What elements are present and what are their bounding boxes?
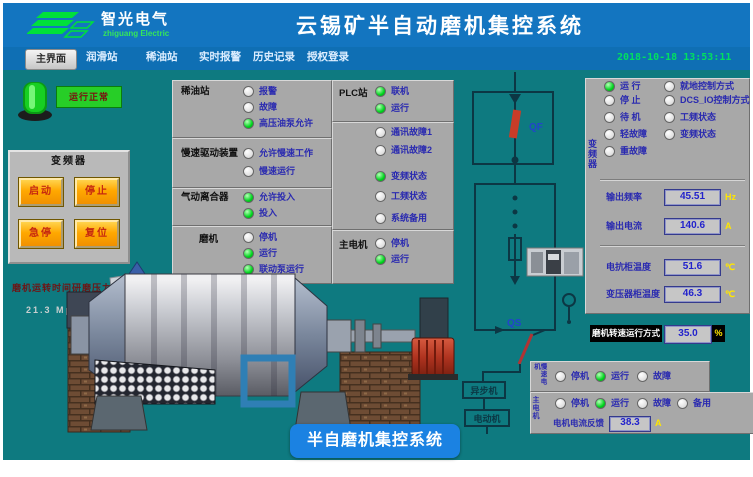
led-indicator <box>243 86 254 97</box>
status-item: 故障 <box>637 398 671 409</box>
status-item: 允许慢速工作 <box>243 148 313 159</box>
status-item-label: 故障 <box>653 399 671 408</box>
menu-item-oil-station[interactable]: 稀油站 <box>146 52 178 63</box>
readout-unit: Hz <box>725 193 736 202</box>
led-indicator <box>595 371 606 382</box>
led-indicator <box>243 166 254 177</box>
status-item-label: 联机 <box>391 87 409 96</box>
trunnion-right <box>327 320 351 352</box>
status-item-label: 运行 <box>611 372 629 381</box>
section-title: 磨机 <box>199 235 218 245</box>
menu-item-login[interactable]: 授权登录 <box>307 52 349 63</box>
status-item-label: 运行 <box>391 104 409 113</box>
status-item: 工频状态 <box>375 191 427 202</box>
led-indicator <box>555 398 566 409</box>
led-indicator <box>375 238 386 249</box>
disconnector-symbol <box>519 334 532 364</box>
status-item: 联机 <box>375 86 409 97</box>
menu-item-realtime-alarm[interactable]: 实时报警 <box>199 52 241 63</box>
led-indicator <box>243 208 254 219</box>
status-item-label: 故障 <box>259 103 277 112</box>
page-title: 云锡矿半自动磨机集控系统 <box>296 16 584 37</box>
status-item: 停机 <box>555 398 589 409</box>
readout-unit: ℃ <box>725 263 735 272</box>
status-item-label: 故障 <box>653 372 671 381</box>
status-item: 投入 <box>243 208 277 219</box>
mill-end-right <box>295 278 327 392</box>
led-indicator <box>664 112 675 123</box>
readout-unit: ℃ <box>725 290 735 299</box>
status-item-label: 轻故障 <box>620 130 647 139</box>
status-item: 报警 <box>243 86 277 97</box>
start-button[interactable]: 启动 <box>19 178 63 206</box>
status-item-label: 运 行 <box>620 82 641 91</box>
async-motor-box-label: 异步机 <box>470 385 497 396</box>
coupling <box>355 320 365 352</box>
status-item: 运 行 <box>604 81 641 92</box>
zhiguang-logo-icon <box>27 9 99 43</box>
led-indicator <box>243 192 254 203</box>
motor-current-label: 电机电流反馈 <box>553 419 604 428</box>
drive-motor <box>408 338 458 380</box>
status-item: 变频状态 <box>664 129 716 140</box>
transformer-temp-display: 46.3 <box>664 286 721 303</box>
status-item-label: 就地控制方式 <box>680 82 734 91</box>
readout-unit: A <box>725 222 732 231</box>
status-item: 停机 <box>375 238 409 249</box>
led-indicator <box>375 171 386 182</box>
led-indicator <box>604 129 615 140</box>
led-indicator <box>375 86 386 97</box>
instrument-symbol <box>563 294 575 306</box>
status-item: 就地控制方式 <box>664 81 734 92</box>
readout-label: 输出频率 <box>606 193 642 202</box>
section-title: 气动离合器 <box>181 193 229 203</box>
status-item: 备用 <box>677 398 711 409</box>
slow-motor-vertical-label: 慢速电机 <box>532 363 545 390</box>
oil-station-panel: 稀油站 报警 故障 高压油泵允许 <box>172 80 332 138</box>
tab-main-screen[interactable]: 主界面 <box>25 49 77 70</box>
speed-value-display: 35.0 <box>664 325 712 344</box>
status-item-label: 停机 <box>571 372 589 381</box>
clutch-panel: 气动离合器 允许投入 投入 <box>172 188 332 226</box>
status-item-label: 运行 <box>611 399 629 408</box>
scada-window: 智光电气 zhiguang Electric 云锡矿半自动磨机集控系统 主界面 … <box>0 0 753 477</box>
menu-item-history[interactable]: 历史记录 <box>253 52 295 63</box>
foundation-right <box>340 352 420 434</box>
led-indicator <box>375 127 386 138</box>
status-item: 停机 <box>243 232 277 243</box>
estop-button[interactable]: 急停 <box>19 220 63 248</box>
mill-graphic <box>55 258 460 440</box>
section-title: 稀油站 <box>181 87 210 97</box>
header-bar: 智光电气 zhiguang Electric 云锡矿半自动磨机集控系统 <box>3 3 750 47</box>
status-item-label: 允许慢速工作 <box>259 149 313 158</box>
vfd-panel-vertical-label: 变频器 <box>587 139 596 203</box>
section-title: PLC站 <box>339 89 368 99</box>
led-indicator <box>243 232 254 243</box>
output-frequency-display: 45.51 <box>664 189 721 206</box>
led-indicator <box>375 213 386 224</box>
status-item-label: 允许投入 <box>259 193 295 202</box>
section-title: 主电机 <box>339 241 368 251</box>
led-indicator <box>375 191 386 202</box>
led-indicator <box>637 371 648 382</box>
status-item-label: 报警 <box>259 87 277 96</box>
lube-unit <box>420 298 448 338</box>
datetime-display: 2018-10-18 13:53:11 <box>617 53 731 63</box>
system-name-tag: 半自磨机集控系统 <box>290 424 460 458</box>
status-item: 停 止 <box>604 95 641 106</box>
status-item-label: 待 机 <box>620 113 641 122</box>
status-item-label: 投入 <box>259 209 277 218</box>
led-indicator <box>637 398 648 409</box>
status-item: 系统备用 <box>375 213 427 224</box>
section-title: 慢速驱动装置 <box>181 149 238 159</box>
status-item: 运行 <box>595 371 629 382</box>
status-item: 通讯故障1 <box>375 127 432 138</box>
vfd-control-panel: 变频器 启动 停止 急停 复位 <box>8 150 130 264</box>
status-item: 慢速运行 <box>243 166 295 177</box>
slow-motor-panel: 慢速电机 停机 运行 故障 <box>530 361 710 392</box>
led-indicator <box>664 81 675 92</box>
status-item: 变频状态 <box>375 171 427 182</box>
status-item-label: 高压油泵允许 <box>259 119 313 128</box>
status-item: 待 机 <box>604 112 641 123</box>
reset-button[interactable]: 复位 <box>75 220 119 248</box>
readout-label: 变压器柜温度 <box>606 290 660 299</box>
motor-box-label: 电动机 <box>473 413 500 424</box>
status-item-label: 变频状态 <box>680 130 716 139</box>
output-current-display: 140.6 <box>664 218 721 235</box>
run-status-badge: 运行正常 <box>56 86 122 108</box>
status-item: 重故障 <box>604 146 647 157</box>
status-item-label: 系统备用 <box>391 214 427 223</box>
status-item-label: 通讯故障1 <box>391 128 432 137</box>
led-indicator <box>375 145 386 156</box>
status-item: DCS_IO控制方式 <box>664 95 750 106</box>
led-indicator <box>664 129 675 140</box>
breaker-symbol <box>509 110 521 139</box>
vfd-panel-title: 变频器 <box>10 157 128 167</box>
led-indicator <box>677 398 688 409</box>
status-item-label: 停 止 <box>620 96 641 105</box>
led-indicator <box>604 95 615 106</box>
status-item-label: 备用 <box>693 399 711 408</box>
readout-label: 电抗柜温度 <box>606 263 651 272</box>
arrow-symbol <box>509 94 521 104</box>
status-item: 故障 <box>243 102 277 113</box>
led-indicator <box>375 103 386 114</box>
status-item: 高压油泵允许 <box>243 118 313 129</box>
led-indicator <box>243 118 254 129</box>
status-item-label: 工频状态 <box>680 113 716 122</box>
status-item-label: 工频状态 <box>391 192 427 201</box>
led-indicator <box>604 112 615 123</box>
status-item-label: 变频状态 <box>391 172 427 181</box>
plc-station-panel: PLC站 联机 运行 <box>332 80 454 122</box>
run-status-lamp-icon <box>16 76 54 122</box>
vfd-status-panel: 变频器 运 行 停 止 待 机 轻故障 重故障 就地控制方式 DCS_IO控制方… <box>585 78 750 314</box>
comm-status-panel: 通讯故障1 通讯故障2 变频状态 工频状态 系统备用 <box>332 122 454 230</box>
switch-label: QS <box>507 318 522 329</box>
status-item: 运行 <box>595 398 629 409</box>
status-item-label: 停机 <box>391 239 409 248</box>
status-item: 故障 <box>637 371 671 382</box>
status-item: 通讯故障2 <box>375 145 432 156</box>
led-indicator <box>243 148 254 159</box>
speed-mode-label: 磨机转速运行方式 <box>590 325 662 342</box>
speed-unit: % <box>712 325 725 342</box>
motor-current-display: 38.3 <box>609 416 651 432</box>
status-item-label: 重故障 <box>620 147 647 156</box>
status-item: 允许投入 <box>243 192 295 203</box>
status-item: 运行 <box>375 103 409 114</box>
brand-name: 智光电气 <box>101 12 169 27</box>
pedestal-left <box>91 396 147 430</box>
led-indicator <box>243 102 254 113</box>
stop-button[interactable]: 停止 <box>75 178 119 206</box>
status-item-label: DCS_IO控制方式 <box>680 96 750 105</box>
brand-subtitle: zhiguang Electric <box>103 30 169 38</box>
status-item-label: 运行 <box>259 249 277 258</box>
led-indicator <box>555 371 566 382</box>
led-indicator <box>604 81 615 92</box>
main-motor-feedback-panel: 主电机 停机 运行 故障 备用 电机电流反馈 38.3 A <box>530 392 753 434</box>
reactor-temp-display: 51.6 <box>664 259 721 276</box>
status-item-label: 停机 <box>571 399 589 408</box>
menu-item-lube-station[interactable]: 润滑站 <box>86 52 118 63</box>
led-indicator <box>595 398 606 409</box>
status-item-label: 慢速运行 <box>259 167 295 176</box>
status-item-label: 通讯故障2 <box>391 146 432 155</box>
status-item: 轻故障 <box>604 129 647 140</box>
status-item: 停机 <box>555 371 589 382</box>
led-indicator <box>604 146 615 157</box>
breaker-label: QF <box>529 122 543 133</box>
slow-drive-panel: 慢速驱动装置 允许慢速工作 慢速运行 <box>172 138 332 188</box>
status-item-label: 停机 <box>259 233 277 242</box>
status-item: 工频状态 <box>664 112 716 123</box>
led-indicator <box>664 95 675 106</box>
cabinet-photo <box>527 248 583 276</box>
motor-current-unit: A <box>655 419 662 428</box>
main-motor-vertical-label: 主电机 <box>532 396 539 430</box>
readout-label: 输出电流 <box>606 222 642 231</box>
